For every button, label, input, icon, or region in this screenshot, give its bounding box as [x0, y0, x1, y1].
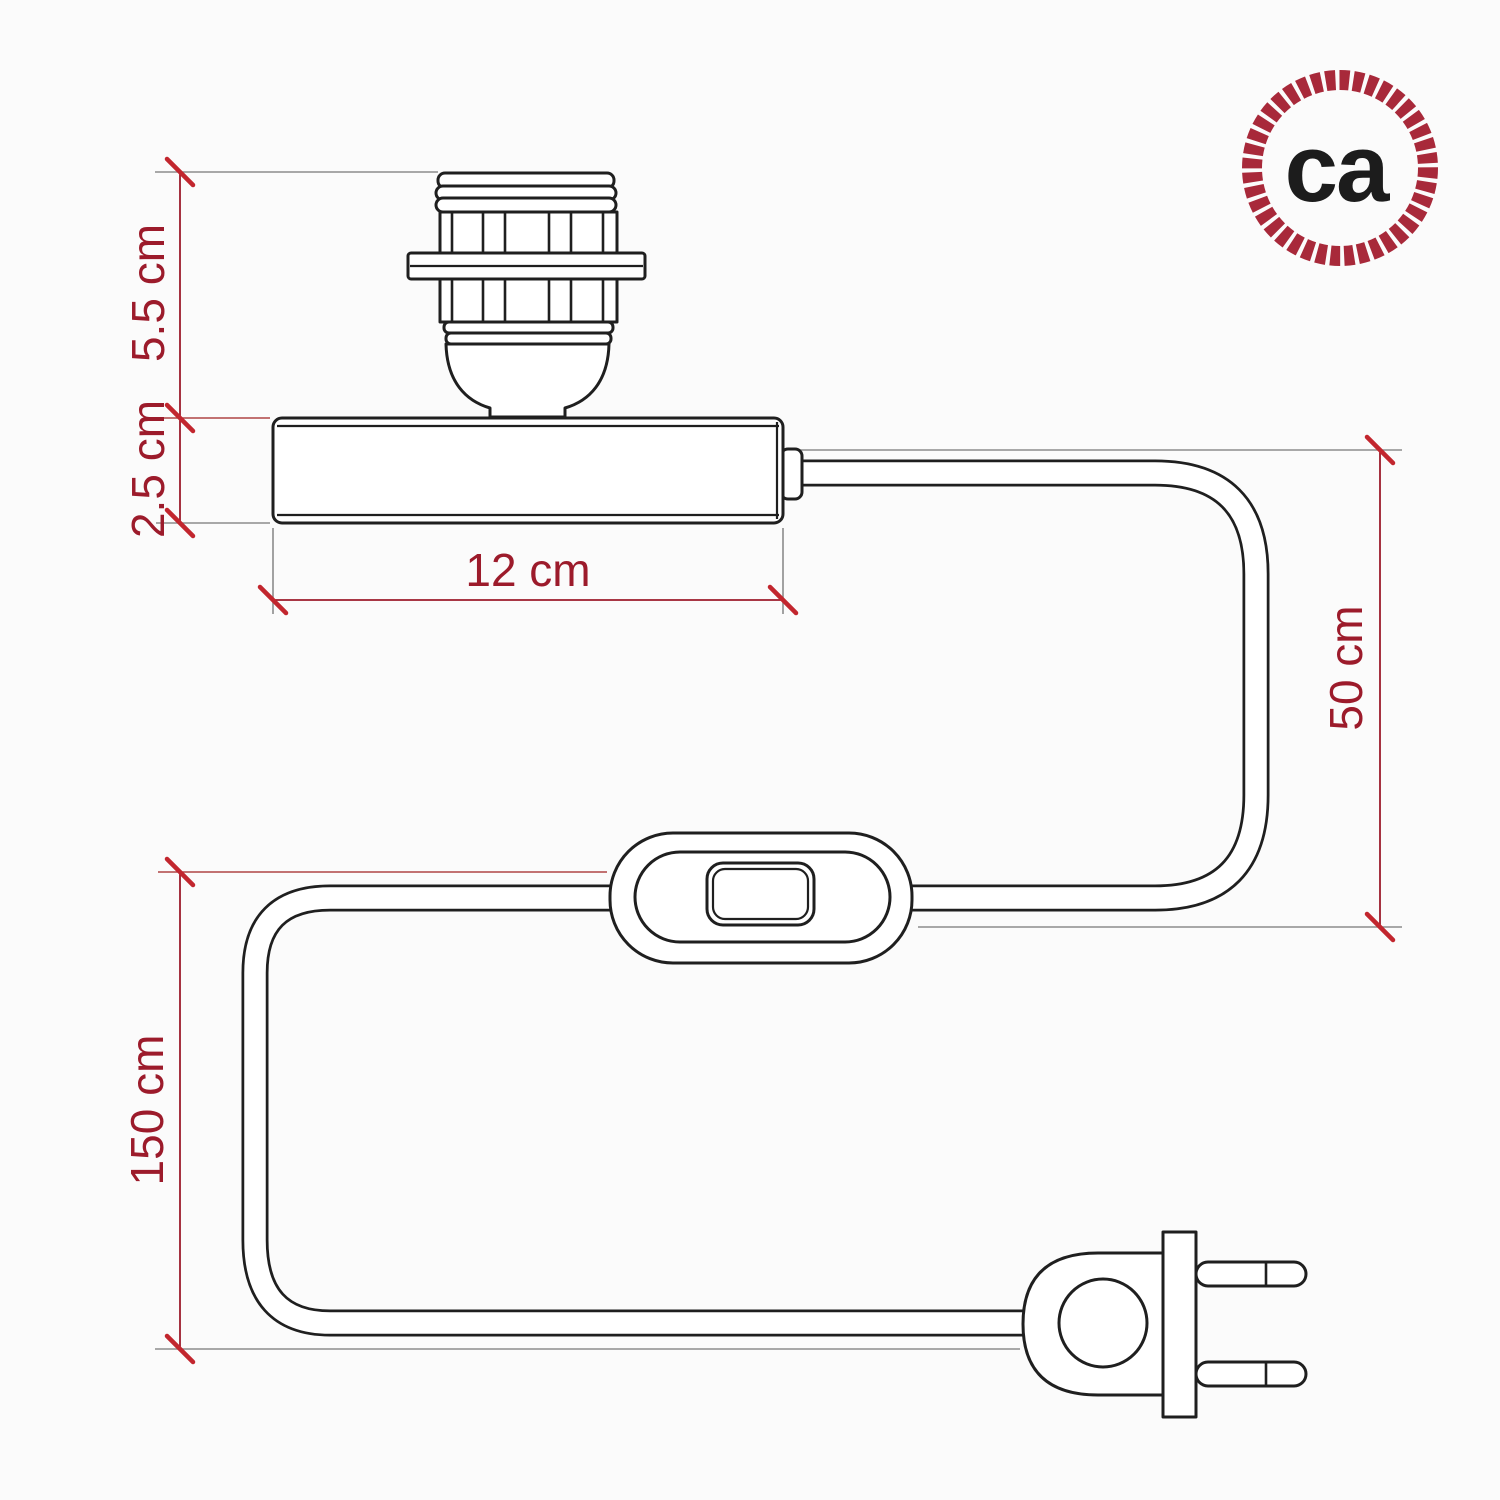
switch-rocker [707, 863, 814, 925]
label-cable-rise: 50 cm [1320, 605, 1372, 730]
two-prong-plug [1023, 1232, 1306, 1417]
tick-marks [167, 159, 1393, 1362]
dimension-lines [180, 172, 1380, 1349]
brand-logo-text: ca [1285, 115, 1390, 222]
holder-cup [446, 344, 609, 417]
thread-ridge [446, 333, 611, 344]
product-dimension-sheet: 5.5 cm 2.5 cm 12 cm 50 cm 150 cm [0, 0, 1500, 1500]
plug-grip-hole [1059, 1279, 1147, 1367]
shade-ring [408, 253, 645, 279]
label-socket-height: 5.5 cm [122, 224, 174, 362]
lamp-holder [408, 173, 645, 417]
label-cable-length: 150 cm [121, 1035, 173, 1186]
lamp-dimension-diagram: 5.5 cm 2.5 cm 12 cm 50 cm 150 cm [0, 0, 1500, 1500]
extension-lines [155, 172, 1402, 1349]
product-drawing [255, 173, 1306, 1417]
label-base-height: 2.5 cm [122, 400, 174, 538]
thread-ridge [444, 322, 613, 333]
brand-logo: ca [1252, 80, 1428, 256]
plug-pin-top [1196, 1262, 1306, 1286]
lamp-base [273, 418, 783, 523]
plug-pin-bottom [1196, 1362, 1306, 1386]
thread-ridge [436, 198, 616, 212]
label-base-width: 12 cm [465, 544, 590, 596]
plug-face-plate [1163, 1232, 1196, 1417]
dimension-labels: 5.5 cm 2.5 cm 12 cm 50 cm 150 cm [121, 224, 1372, 1185]
inline-switch [610, 833, 912, 963]
plug-pins [1196, 1262, 1306, 1386]
base-body [273, 418, 783, 523]
